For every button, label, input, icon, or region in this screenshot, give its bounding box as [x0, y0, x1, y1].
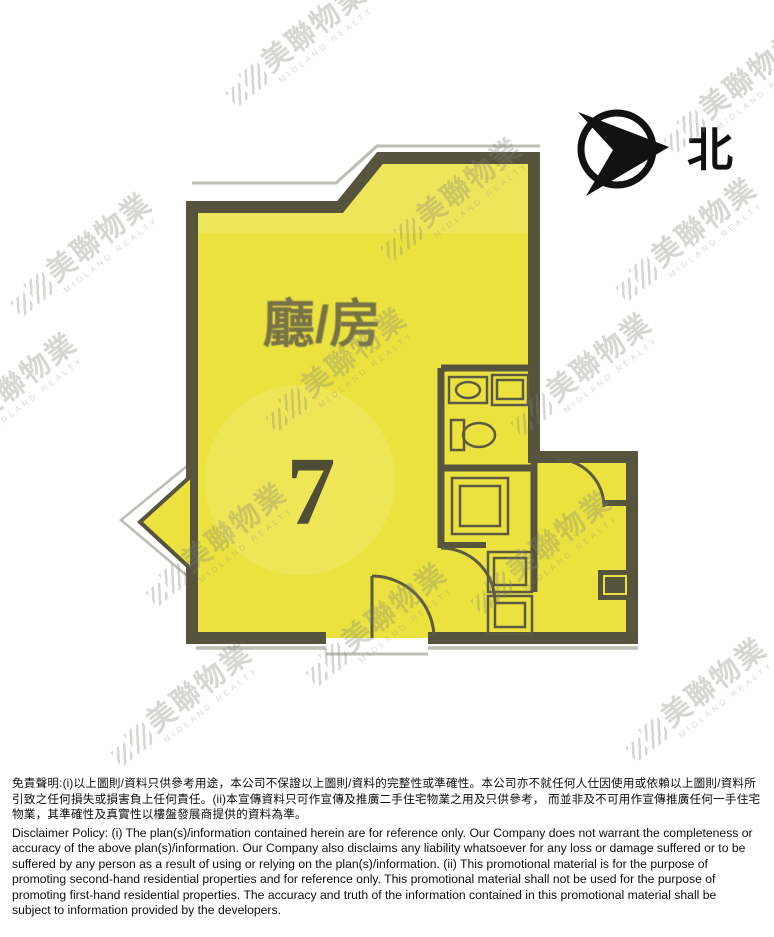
unit-area — [192, 158, 632, 638]
unit-number: 7 — [287, 438, 336, 546]
room-label: 廳/房 — [263, 296, 381, 354]
disclaimer-block: 免責聲明:(i)以上圖則/資料只供參考用途，本公司不保證以上圖則/資料的完整性或… — [12, 776, 764, 919]
bay-window-shape — [140, 475, 192, 570]
floor-plan-drawing: 廳/房 7 北 — [0, 0, 774, 770]
north-label: 北 — [687, 124, 733, 176]
disclaimer-english: Disclaimer Policy: (i) The plan(s)/infor… — [12, 826, 756, 919]
bay-window — [140, 475, 192, 570]
disclaimer-chinese: 免責聲明:(i)以上圖則/資料只供參考用途，本公司不保證以上圖則/資料的完整性或… — [12, 776, 764, 823]
north-compass: 北 — [578, 112, 733, 196]
floor-plan-page: 廳/房 7 北 美聯物業MIDLAND REALTY美聯物業MIDLAND RE… — [0, 0, 774, 937]
